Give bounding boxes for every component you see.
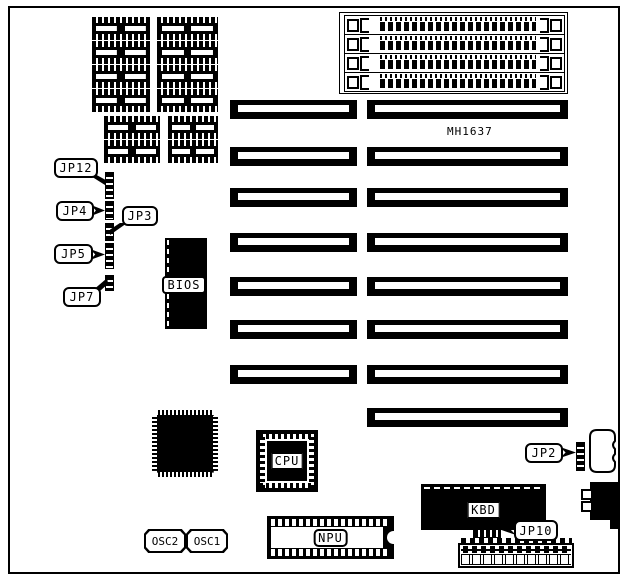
expansion-slot-16bit — [367, 365, 568, 384]
dram-socket — [92, 65, 150, 88]
jp12-label: JP12 — [54, 158, 98, 178]
npu-pin-row-bottom — [271, 549, 390, 556]
dram-socket — [92, 89, 150, 112]
dram-socket — [92, 17, 150, 40]
dram-socket — [104, 140, 160, 163]
bios-label-text: BIOS — [168, 278, 201, 292]
jp5-jumper-strip — [105, 243, 114, 269]
jp7-label-text: JP7 — [70, 290, 95, 304]
npu-socket: NPU — [267, 516, 394, 559]
expansion-slot-8bit — [230, 147, 357, 166]
jp5-label: JP5 — [54, 244, 93, 264]
simm-socket — [344, 15, 565, 35]
jp10-label-text: JP10 — [520, 524, 553, 538]
expansion-slot-16bit — [367, 320, 568, 339]
power-connector-pin-row — [461, 546, 571, 553]
cpu-socket: CPU — [256, 430, 318, 492]
expansion-slot-16bit — [367, 233, 568, 252]
kbd-label: KBD — [467, 502, 500, 518]
dram-socket — [157, 89, 218, 112]
keyboard-din-connector — [590, 482, 620, 520]
jp4-jumper-strip — [105, 201, 114, 220]
keyboard-connector-tab — [581, 501, 593, 512]
osc2-crystal: OSC2 — [144, 529, 186, 553]
dram-socket — [157, 17, 218, 40]
keyboard-connector-tab — [581, 489, 593, 500]
cpu-label: CPU — [272, 453, 303, 469]
expansion-slot-16bit — [367, 100, 568, 119]
jp10-label: JP10 — [514, 520, 558, 541]
osc1-label: OSC1 — [194, 535, 221, 548]
jp12-label-text: JP12 — [60, 161, 93, 175]
dram-socket — [157, 41, 218, 64]
osc1-crystal: OSC1 — [186, 529, 228, 553]
expansion-slot-8bit — [230, 277, 357, 296]
expansion-slot-8bit — [230, 365, 357, 384]
simm-bank-box — [339, 12, 568, 94]
expansion-slot-8bit — [230, 320, 357, 339]
expansion-slot-16bit — [367, 147, 568, 166]
jp2-label-text: JP2 — [532, 446, 557, 460]
dram-socket — [168, 116, 218, 139]
jp4-label-text: JP4 — [63, 204, 88, 218]
expansion-slot-16bit — [367, 188, 568, 207]
jp3-label-text: JP3 — [128, 209, 153, 223]
bios-label: BIOS — [162, 276, 206, 294]
dram-socket — [168, 140, 218, 163]
model-label: MH1637 — [447, 125, 493, 138]
power-connector — [458, 543, 574, 568]
expansion-slot-16bit — [367, 408, 568, 427]
dram-socket — [92, 41, 150, 64]
jp4-label: JP4 — [56, 201, 94, 221]
jp12-jumper-strip — [105, 172, 114, 199]
jp3-label: JP3 — [122, 206, 158, 226]
jp7-label: JP7 — [63, 287, 101, 307]
keyboard-din-connector-foot — [610, 520, 620, 529]
expansion-slot-8bit — [230, 188, 357, 207]
motherboard-diagram: MH1637 JP12 JP4 JP3 JP5 JP7 BIOS CPU OSC… — [0, 0, 626, 580]
npu-label: NPU — [313, 529, 348, 547]
expansion-slot-8bit — [230, 100, 357, 119]
battery-outline — [586, 428, 618, 474]
chipset-qfp — [152, 410, 218, 477]
power-connector-terminal-row — [461, 554, 571, 565]
jp5-label-text: JP5 — [61, 247, 86, 261]
simm-socket — [344, 53, 565, 73]
simm-socket — [344, 72, 565, 92]
jp2-label: JP2 — [525, 443, 563, 463]
osc2-label: OSC2 — [152, 535, 179, 548]
dram-socket — [157, 65, 218, 88]
npu-notch — [387, 531, 394, 544]
dram-socket — [104, 116, 160, 139]
jp2-jumper-strip — [576, 442, 585, 471]
expansion-slot-8bit — [230, 233, 357, 252]
npu-pin-row-top — [271, 519, 390, 526]
simm-socket — [344, 34, 565, 54]
expansion-slot-16bit — [367, 277, 568, 296]
jp10-jumper-strip — [473, 529, 501, 538]
